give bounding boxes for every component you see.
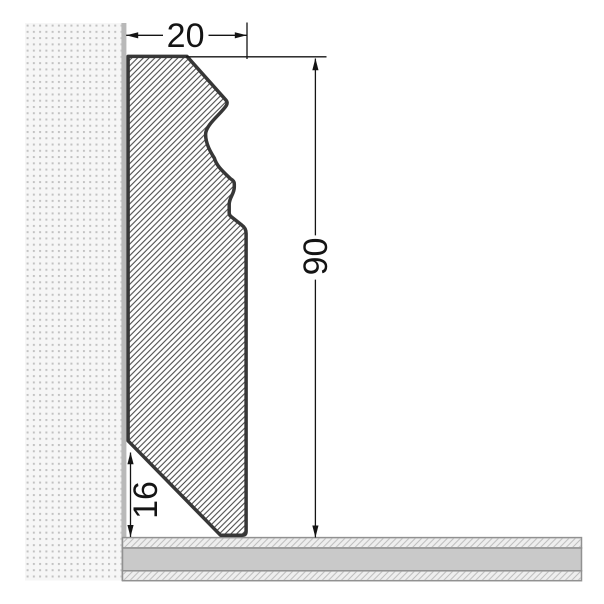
svg-text:16: 16 (127, 481, 165, 519)
svg-text:90: 90 (297, 238, 335, 276)
svg-text:20: 20 (167, 17, 205, 55)
